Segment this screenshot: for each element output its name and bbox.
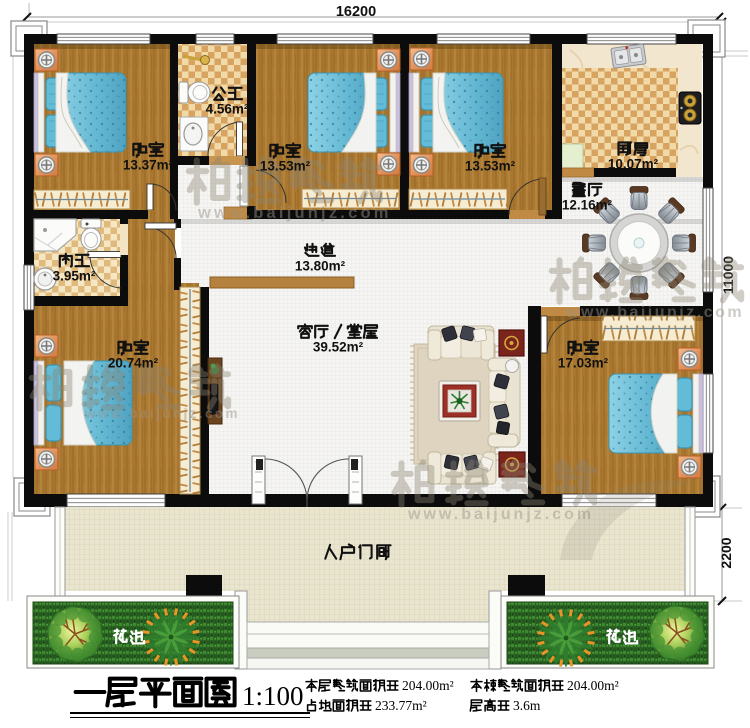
svg-text:www.baijunjz.com: www.baijunjz.com bbox=[565, 304, 744, 321]
svg-text:3.95m²: 3.95m² bbox=[53, 269, 96, 284]
svg-text:16200: 16200 bbox=[336, 4, 376, 20]
svg-text:www.baijunjz.com: www.baijunjz.com bbox=[197, 204, 392, 222]
svg-text:13.80m²: 13.80m² bbox=[295, 259, 346, 274]
svg-text:3.6m: 3.6m bbox=[513, 698, 541, 713]
svg-text:20.74m²: 20.74m² bbox=[108, 356, 159, 371]
svg-text:17.03m²: 17.03m² bbox=[558, 356, 609, 371]
svg-text:39.52m²: 39.52m² bbox=[313, 340, 364, 355]
svg-text:204.00m²: 204.00m² bbox=[402, 678, 454, 693]
svg-text:1:100: 1:100 bbox=[242, 681, 304, 711]
svg-text:12.16m²: 12.16m² bbox=[562, 198, 613, 213]
svg-text:www.baijunjz.com: www.baijunjz.com bbox=[407, 506, 594, 523]
svg-text:13.53m²: 13.53m² bbox=[465, 159, 516, 174]
svg-text:www.baijunjz.com: www.baijunjz.com bbox=[84, 406, 240, 421]
svg-text:204.00m²: 204.00m² bbox=[567, 678, 619, 693]
svg-text:10.07m²: 10.07m² bbox=[608, 157, 659, 172]
svg-text:233.77m²: 233.77m² bbox=[375, 698, 427, 713]
svg-text:13.37m²: 13.37m² bbox=[123, 158, 174, 173]
svg-text:13.53m²: 13.53m² bbox=[260, 159, 311, 174]
svg-text:2200: 2200 bbox=[718, 537, 734, 568]
svg-text:4.56m²: 4.56m² bbox=[206, 102, 249, 117]
